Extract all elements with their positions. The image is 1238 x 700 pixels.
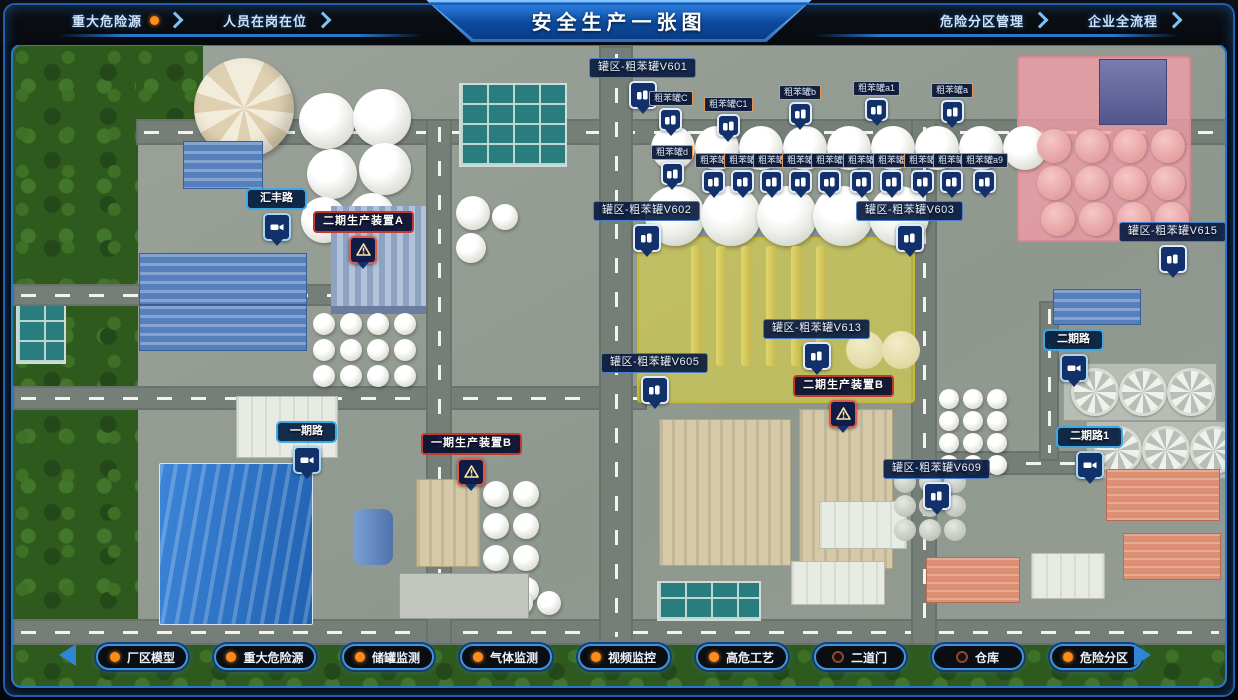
tank-w — [513, 577, 539, 603]
tank-w — [513, 545, 539, 571]
tankzone-label: 罐区-粗苯罐V605 — [601, 353, 708, 373]
tankzone-label: 罐区-粗苯罐V613 — [763, 319, 870, 339]
tank-w — [367, 339, 389, 361]
nav-item-label: 危险分区管理 — [940, 11, 1024, 30]
cyl-blue — [353, 509, 393, 565]
status-dot-icon — [832, 651, 844, 663]
tank-w — [367, 365, 389, 387]
toolbar-button-label: 高危工艺 — [726, 649, 774, 666]
fan — [1119, 368, 1167, 416]
tanksmall-label: 粗苯罐C1 — [704, 97, 753, 112]
toolbar-button[interactable]: 二道门 — [814, 644, 906, 670]
toolbar-button[interactable]: 重大危险源 — [214, 644, 315, 670]
fan — [1167, 368, 1215, 416]
tank-pin-icon — [633, 224, 661, 252]
tank-pin-icon — [731, 170, 754, 193]
toolbar-button[interactable]: 视频监控 — [578, 644, 670, 670]
col-y — [716, 246, 726, 366]
road-v — [426, 119, 452, 645]
tank-p — [1075, 129, 1109, 163]
tank-pin-icon — [940, 170, 963, 193]
road-marker[interactable]: 汇丰路 — [246, 188, 307, 241]
tank-g — [919, 519, 941, 541]
bld-salmon — [1123, 533, 1221, 580]
tank-y — [882, 331, 920, 369]
toolbar-button[interactable]: 储罐监测 — [342, 644, 434, 670]
tanksmall-marker[interactable]: 粗苯罐b — [779, 85, 821, 125]
tank-pin-icon — [880, 170, 903, 193]
tank-w — [963, 411, 983, 431]
toolbar-button-label: 重大危险源 — [243, 649, 303, 666]
tank-pin-icon — [896, 224, 924, 252]
unit-marker[interactable]: 一期生产装置B — [421, 433, 522, 486]
tank-pin-icon — [973, 170, 996, 193]
tank-pin-icon — [803, 342, 831, 370]
grass — [136, 46, 203, 124]
tank-w — [353, 89, 411, 147]
toolbar-button[interactable]: 仓库 — [932, 644, 1024, 670]
tanksmall-label: 粗苯罐d — [651, 145, 693, 160]
road-label: 二期路1 — [1056, 426, 1123, 448]
toolbar-button-label: 储罐监测 — [372, 649, 420, 666]
bld-tan — [659, 419, 791, 566]
tank-w — [456, 233, 486, 263]
toolbar-button[interactable]: 高危工艺 — [696, 644, 788, 670]
fan — [1190, 426, 1227, 474]
tanksmall-label: 粗苯罐C — [649, 91, 693, 106]
nav-item-label: 人员在岗在位 — [223, 11, 307, 30]
col-y — [691, 246, 701, 366]
tankzone-marker[interactable]: 罐区-粗苯罐V603 — [856, 201, 963, 252]
bld-white — [791, 561, 885, 605]
status-dot-icon — [956, 651, 968, 663]
tankzone-marker[interactable]: 罐区-粗苯罐V602 — [593, 201, 700, 252]
tank-w — [340, 339, 362, 361]
tanksmall-marker[interactable]: 粗苯罐C1 — [704, 97, 753, 137]
tank-w — [313, 365, 335, 387]
bld-blue — [139, 253, 307, 305]
camera-pin-icon — [293, 446, 321, 474]
tank-w — [313, 339, 335, 361]
tank-pin-icon — [717, 114, 740, 137]
tank-pin-icon — [659, 108, 682, 131]
title-plate-inner: 安全生产一张图 — [417, 2, 821, 39]
tankzone-marker[interactable]: 罐区-粗苯罐V615 — [1119, 222, 1226, 273]
tank-w — [987, 411, 1007, 431]
active-dot-icon — [150, 16, 159, 25]
tank-pin-icon — [789, 102, 812, 125]
tank-w — [394, 365, 416, 387]
tanksmall-marker[interactable]: 粗苯罐C — [649, 91, 693, 131]
tank-pin-icon — [941, 100, 964, 123]
road-h — [13, 386, 647, 410]
tank-w — [481, 591, 505, 615]
camera-pin-icon — [1076, 451, 1104, 479]
tank-p — [1041, 202, 1075, 236]
toolbar-button-label: 气体监测 — [490, 649, 538, 666]
unit-label: 二期生产装置B — [793, 375, 894, 397]
warning-pin-icon — [457, 458, 485, 486]
tank-p — [1037, 166, 1071, 200]
tanksmall-marker[interactable]: 粗苯罐a1 — [853, 81, 900, 121]
tank-w — [340, 365, 362, 387]
tank-pin-icon — [661, 162, 684, 185]
status-dot-icon — [709, 652, 719, 662]
tank-w — [513, 513, 539, 539]
status-dot-icon — [473, 652, 483, 662]
tank-pin-icon — [760, 170, 783, 193]
col-y — [741, 246, 751, 366]
tank-w — [483, 513, 509, 539]
tank-w — [307, 149, 357, 199]
road-label: 一期路 — [276, 421, 337, 443]
tankzone-label: 罐区-粗苯罐V615 — [1119, 222, 1226, 242]
bld-bluebig — [159, 463, 313, 625]
tank-pin-icon — [923, 482, 951, 510]
tank-w — [456, 196, 490, 230]
tanksmall-marker[interactable]: 粗苯罐a — [931, 83, 973, 123]
tankzone-marker[interactable]: 罐区-粗苯罐V605 — [601, 353, 708, 404]
warning-pin-icon — [829, 400, 857, 428]
tank-w — [537, 591, 561, 615]
tank-w — [394, 339, 416, 361]
road-label: 汇丰路 — [246, 188, 307, 210]
status-dot-icon — [355, 652, 365, 662]
nav-item[interactable]: 人员在岗在位 — [223, 11, 329, 30]
tank-w — [939, 389, 959, 409]
pool — [459, 83, 567, 167]
toolbar-button-label: 视频监控 — [608, 649, 656, 666]
bld-blue — [139, 305, 307, 351]
tankzone-label: 罐区-粗苯罐V601 — [589, 58, 696, 78]
tank-w — [1003, 126, 1047, 170]
title-plate: 安全生产一张图 — [414, 0, 824, 42]
tank-pin-icon — [865, 98, 888, 121]
tank-p — [1113, 129, 1147, 163]
tanksmall-marker[interactable]: 粗苯罐d — [651, 145, 693, 185]
toolbar: 厂区模型重大危险源储罐监测气体监测视频监控高危工艺二道门仓库危险分区 — [13, 644, 1225, 670]
tank-w — [367, 313, 389, 335]
tank-pin-icon — [789, 170, 812, 193]
chevron-right-icon — [315, 12, 332, 29]
tank-p — [1037, 129, 1071, 163]
toolbar-button[interactable]: 气体监测 — [460, 644, 552, 670]
toolbar-button-label: 厂区模型 — [127, 649, 175, 666]
road-marker[interactable]: 二期路 — [1043, 329, 1104, 382]
chevron-right-icon — [167, 12, 184, 29]
hazard-tank-highlight-zone — [1017, 56, 1191, 242]
tank-pin-icon — [641, 376, 669, 404]
nav-left: 重大危险源人员在岗在位 — [72, 0, 329, 40]
tanksmall-label: 粗苯罐b — [779, 85, 821, 100]
tank-w — [359, 143, 411, 195]
chevron-right-icon — [1166, 12, 1183, 29]
toolbar-button[interactable]: 厂区模型 — [96, 644, 188, 670]
tanksmall-label: 粗苯罐a1 — [853, 81, 900, 96]
tank-w — [987, 433, 1007, 453]
tank-w — [987, 389, 1007, 409]
tank-w — [963, 389, 983, 409]
tank-w — [483, 545, 509, 571]
status-dot-icon — [1063, 652, 1073, 662]
toolbar-button[interactable]: 危险分区 — [1050, 644, 1142, 670]
nav-right: 危险分区管理企业全流程 — [940, 0, 1180, 40]
bld-purple — [1099, 59, 1167, 125]
plant-3d-map[interactable]: 罐区-粗苯罐V601粗苯罐C粗苯罐C1粗苯罐b粗苯罐a1粗苯罐a粗苯罐d粗苯罐粗… — [11, 44, 1227, 688]
toolbar-button-label: 二道门 — [851, 649, 887, 666]
bld-salmon — [926, 557, 1020, 603]
road-h — [13, 619, 1227, 645]
camera-pin-icon — [263, 213, 291, 241]
bld-gray — [399, 573, 529, 619]
tankzone-marker[interactable]: 罐区-粗苯罐V613 — [763, 319, 870, 370]
unit-marker[interactable]: 二期生产装置B — [793, 375, 894, 428]
tank-w — [509, 591, 533, 615]
bld-white — [1031, 553, 1105, 599]
tank-w — [394, 313, 416, 335]
tank-w — [340, 313, 362, 335]
nav-item[interactable]: 企业全流程 — [1088, 11, 1180, 30]
tank-w — [299, 93, 355, 149]
tank-g — [944, 519, 966, 541]
tank-p — [1075, 166, 1109, 200]
warning-pin-icon — [349, 236, 377, 264]
tanksmall-label: 粗苯罐a9 — [961, 153, 1008, 168]
tank-w — [939, 411, 959, 431]
pool — [16, 304, 66, 364]
tank-pin-icon — [911, 170, 934, 193]
tanksmall-label: 粗苯罐a — [931, 83, 973, 98]
tank-g — [894, 519, 916, 541]
tank-p — [1151, 166, 1185, 200]
tank-pin-icon — [818, 170, 841, 193]
grass — [13, 46, 138, 645]
pool — [657, 581, 761, 621]
tank-big — [194, 58, 294, 158]
tankzone-marker[interactable]: 罐区-粗苯罐V609 — [883, 459, 990, 510]
tank-pin-icon — [1159, 245, 1187, 273]
status-dot-icon — [226, 652, 236, 662]
road-v — [599, 46, 633, 645]
tank-pin-icon — [850, 170, 873, 193]
camera-pin-icon — [1060, 354, 1088, 382]
unit-label: 二期生产装置A — [313, 211, 414, 233]
tank-w — [963, 433, 983, 453]
nav-item-label: 重大危险源 — [72, 11, 142, 30]
tank-p — [1079, 202, 1113, 236]
unit-marker[interactable]: 二期生产装置A — [313, 211, 414, 264]
page-title: 安全生产一张图 — [532, 6, 707, 35]
header-bar: 重大危险源人员在岗在位 安全生产一张图 危险分区管理企业全流程 — [0, 0, 1238, 45]
bld-blue — [1053, 289, 1141, 325]
toolbar-button-label: 仓库 — [975, 649, 999, 666]
tank-pin-icon — [702, 170, 725, 193]
tank-p — [1113, 166, 1147, 200]
tank-w — [939, 433, 959, 453]
tank-w — [492, 204, 518, 230]
toolbar-button-label: 危险分区 — [1080, 649, 1128, 666]
chevron-right-icon — [1031, 12, 1048, 29]
toolbar-next-arrow[interactable] — [1134, 644, 1151, 666]
nav-item-label: 企业全流程 — [1088, 11, 1158, 30]
tankzone-label: 罐区-粗苯罐V602 — [593, 201, 700, 221]
tank-w — [483, 577, 509, 603]
bld-blue — [183, 141, 263, 189]
tank-p — [1151, 129, 1185, 163]
nav-item[interactable]: 重大危险源 — [72, 11, 181, 30]
unit-label: 一期生产装置B — [421, 433, 522, 455]
road-marker[interactable]: 二期路1 — [1056, 426, 1123, 479]
road-label: 二期路 — [1043, 329, 1104, 351]
tank-w — [313, 313, 335, 335]
tanksmall-marker[interactable]: 粗苯罐a9 — [961, 153, 1008, 193]
nav-item[interactable]: 危险分区管理 — [940, 11, 1046, 30]
status-dot-icon — [110, 652, 120, 662]
fan — [1142, 426, 1190, 474]
road-h — [13, 284, 437, 306]
tankzone-label: 罐区-粗苯罐V603 — [856, 201, 963, 221]
road-marker[interactable]: 一期路 — [276, 421, 337, 474]
status-dot-icon — [591, 652, 601, 662]
tankzone-label: 罐区-粗苯罐V609 — [883, 459, 990, 479]
